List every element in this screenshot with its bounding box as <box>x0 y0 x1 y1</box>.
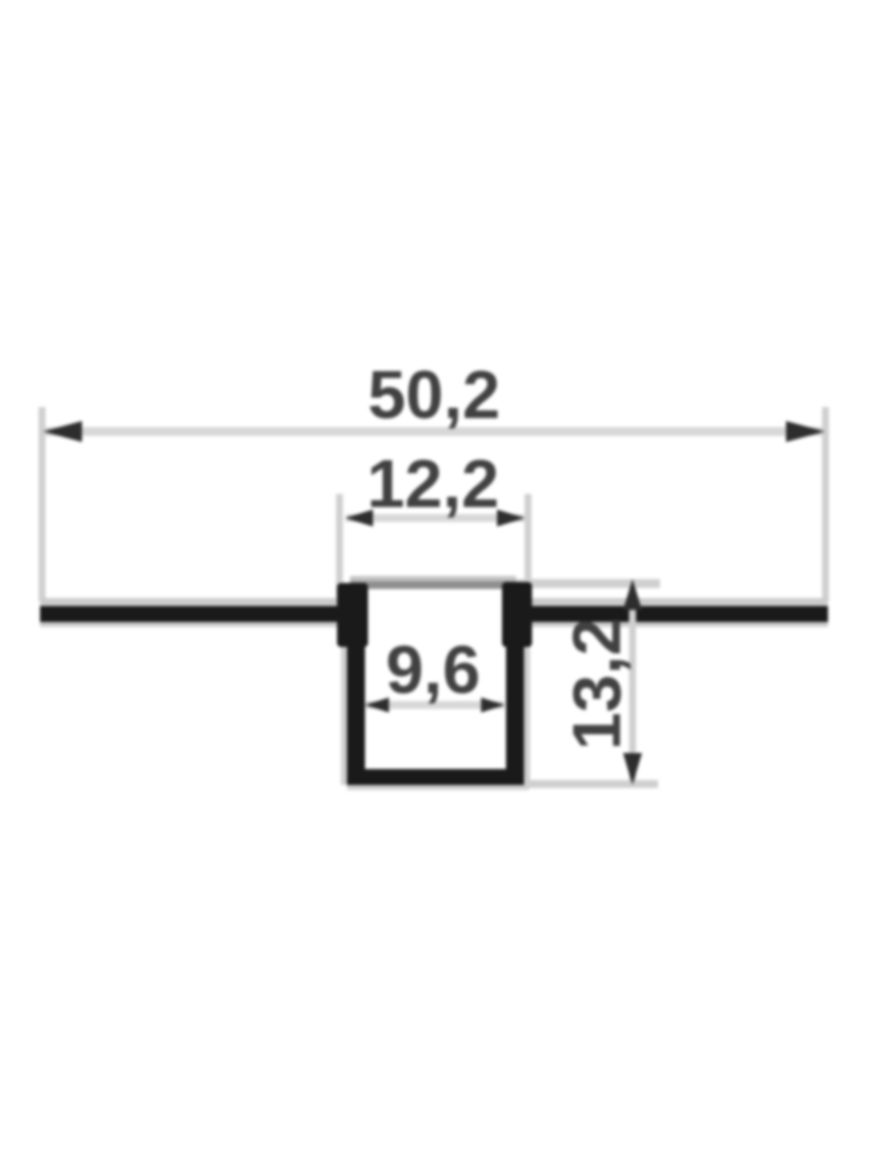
svg-text:9,6: 9,6 <box>386 632 481 708</box>
svg-text:12,2: 12,2 <box>367 446 499 522</box>
svg-text:50,2: 50,2 <box>368 357 500 433</box>
svg-text:13,2: 13,2 <box>559 618 635 750</box>
